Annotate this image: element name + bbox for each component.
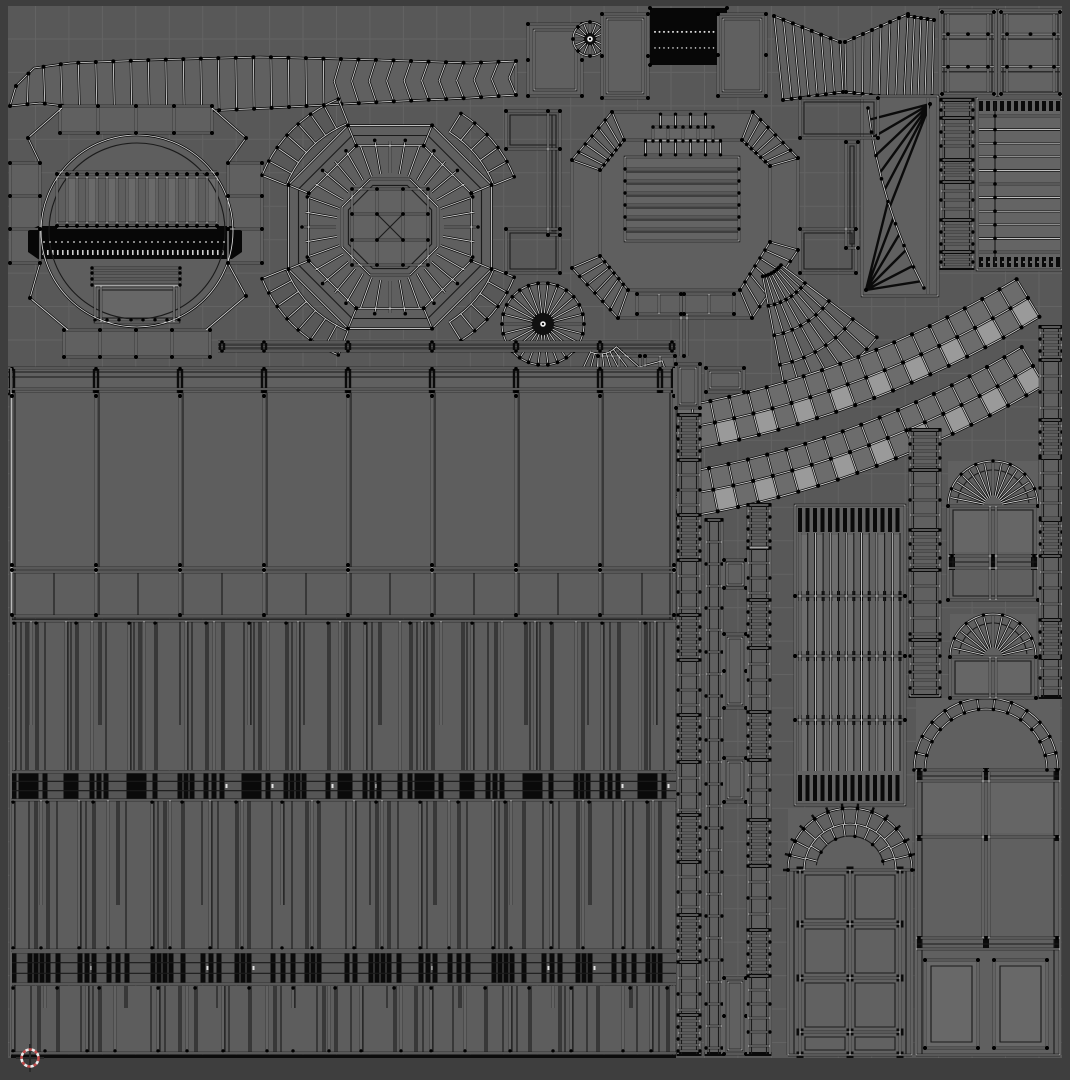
thin-rail[interactable] xyxy=(218,340,676,353)
fan-window-2[interactable] xyxy=(948,613,1038,700)
sail-island[interactable] xyxy=(862,96,938,296)
strip-right-2[interactable] xyxy=(908,428,941,698)
tab-3[interactable] xyxy=(722,558,748,590)
arched-door[interactable] xyxy=(783,804,917,1059)
ribbed-panel-right[interactable] xyxy=(977,98,1062,270)
uv-editor-window xyxy=(0,0,1070,1080)
column-strip-c[interactable] xyxy=(704,518,723,1056)
mullion-panel[interactable] xyxy=(793,505,907,805)
wall-band-3[interactable] xyxy=(11,986,676,1058)
wall-band-2[interactable] xyxy=(11,800,676,950)
fan-window-1[interactable] xyxy=(946,459,1040,602)
tab-frame-1[interactable] xyxy=(674,362,702,410)
uv-editor-canvas[interactable] xyxy=(0,0,1070,1080)
bowtie-edge-wing[interactable] xyxy=(902,14,936,101)
tab-4[interactable] xyxy=(722,632,748,710)
frame-b[interactable] xyxy=(716,12,768,98)
arched-window-large[interactable] xyxy=(912,697,1060,1055)
knot-row-2[interactable] xyxy=(12,952,677,984)
tab-6[interactable] xyxy=(722,976,748,1056)
frame-a[interactable] xyxy=(600,12,650,100)
mullion-band[interactable] xyxy=(12,621,676,770)
panel-top-right-2[interactable] xyxy=(999,10,1062,96)
column-strip-b[interactable] xyxy=(746,503,771,1056)
knot-row-1[interactable] xyxy=(12,772,677,800)
cornice-band[interactable] xyxy=(8,367,676,394)
strip-right-top[interactable] xyxy=(939,98,974,270)
panel-top-right-1[interactable] xyxy=(940,10,996,96)
tab-5[interactable] xyxy=(722,756,748,804)
column-strip-a[interactable] xyxy=(676,413,701,1056)
tab-frame-2[interactable] xyxy=(704,366,746,394)
strip-right-1[interactable] xyxy=(1038,325,1063,699)
